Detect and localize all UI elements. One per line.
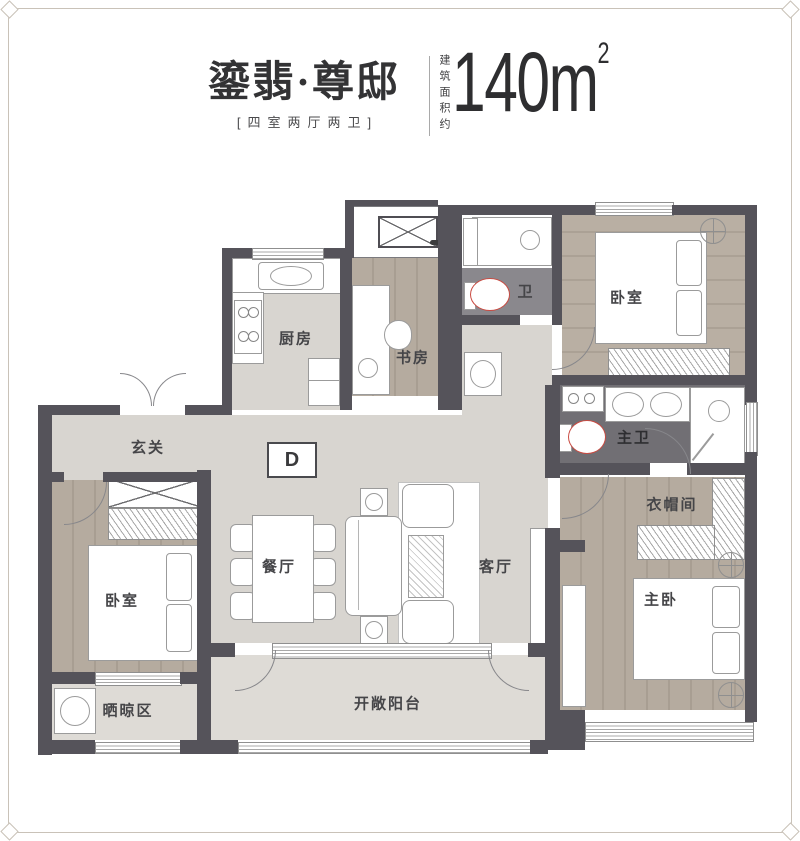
- window: [746, 402, 758, 456]
- window: [252, 248, 324, 260]
- pillow: [166, 553, 192, 601]
- wall-segment: [38, 405, 52, 755]
- wall-segment: [38, 740, 95, 754]
- wall-shaft: [438, 205, 462, 410]
- area-label-vertical: 建筑面积约: [436, 54, 452, 150]
- armchair: [402, 484, 454, 528]
- vanity-basin-icon: [470, 360, 496, 388]
- layout-spec: [四室两厅两卫]: [188, 112, 420, 131]
- room-label-living: 客厅: [479, 556, 513, 577]
- pillow: [676, 240, 702, 286]
- wall-segment: [530, 740, 548, 754]
- wall-segment: [687, 463, 745, 475]
- wall-segment: [745, 452, 757, 710]
- room-label-bath: 卫: [517, 281, 534, 302]
- wall-segment: [103, 472, 207, 482]
- dresser: [562, 585, 586, 707]
- ceiling-fixture-icon: [718, 552, 744, 578]
- area-superscript: 2: [598, 37, 610, 70]
- wardrobe: [108, 508, 202, 540]
- project-title: 鎏翡·尊邸: [188, 48, 420, 109]
- wall-segment: [340, 248, 352, 410]
- wall-segment: [462, 315, 520, 325]
- desk-lamp-icon: [358, 358, 378, 378]
- wall-segment: [211, 643, 235, 657]
- wall-segment: [180, 740, 211, 754]
- ceiling-fixture-icon: [700, 218, 726, 244]
- pillow: [712, 586, 740, 628]
- wardrobe: [608, 348, 730, 377]
- room-label-bedroom-top: 卧室: [610, 287, 644, 308]
- room-label-study: 书房: [396, 347, 430, 368]
- corner-window: [585, 722, 754, 742]
- sink-basin-icon: [270, 266, 312, 286]
- wall-segment: [745, 708, 757, 722]
- kitchen-cabinet: [308, 358, 340, 382]
- room-label-master-bath: 主卫: [617, 427, 651, 448]
- wardrobe: [712, 478, 745, 560]
- balcony-sliding-window: [272, 643, 492, 659]
- stove-icon: [234, 300, 262, 354]
- room-label-master-bedroom: 主卧: [644, 589, 678, 610]
- wall-segment: [560, 540, 585, 552]
- wall-segment: [552, 375, 757, 385]
- wall-segment: [180, 672, 197, 684]
- toilet-icon: [470, 278, 510, 311]
- wall-segment: [52, 472, 64, 482]
- area-value: 140m2: [452, 36, 610, 128]
- room-label-balcony: 开敞阳台: [354, 693, 422, 714]
- lamp-icon: [365, 621, 383, 639]
- header-divider: [429, 56, 430, 136]
- shower-head-icon: [520, 230, 540, 250]
- room-label-kitchen: 厨房: [279, 328, 313, 349]
- wall-segment: [211, 740, 238, 754]
- sink-basin-icon: [612, 392, 644, 417]
- balcony-window: [238, 742, 532, 754]
- sofa: [345, 516, 402, 616]
- ac-unit-icon: [378, 216, 438, 248]
- fridge-icon: [308, 380, 340, 406]
- wall-segment: [462, 205, 595, 215]
- wardrobe: [637, 525, 715, 560]
- wall-segment: [345, 200, 354, 258]
- wall-segment: [197, 470, 211, 752]
- unit-type-badge: D: [267, 442, 317, 478]
- wall-segment: [548, 710, 585, 750]
- laundry-cabinet: [562, 386, 604, 412]
- pillow: [676, 290, 702, 336]
- pillow: [166, 604, 192, 652]
- room-label-entry: 玄关: [131, 437, 165, 458]
- room-label-drying: 晒晾区: [102, 700, 153, 721]
- room-label-bedroom-left: 卧室: [105, 590, 139, 611]
- shower-area: [472, 217, 552, 266]
- toilet-icon: [568, 420, 606, 454]
- room-label-cloakroom: 衣帽间: [646, 494, 697, 515]
- wall-segment: [552, 205, 562, 325]
- armchair: [402, 600, 454, 644]
- washer-drum-icon: [60, 696, 90, 726]
- sofa-back-line: [358, 520, 359, 610]
- bath-cabinet: [463, 218, 478, 266]
- overhead-cabinet: [108, 478, 202, 508]
- window: [95, 672, 182, 686]
- lamp-icon: [365, 493, 383, 511]
- ceiling-fixture-icon: [718, 682, 744, 708]
- floorplan-page: 鎏翡·尊邸 [四室两厅两卫] 建筑面积约 140m2: [0, 0, 800, 841]
- window: [595, 202, 674, 216]
- wall-segment: [185, 405, 232, 415]
- pillow: [712, 632, 740, 674]
- room-label-dining: 餐厅: [262, 556, 296, 577]
- desk-chair-icon: [384, 320, 412, 350]
- wall-segment: [352, 200, 438, 206]
- wall-segment: [528, 643, 548, 657]
- wall-segment: [52, 672, 95, 684]
- wall-segment: [222, 248, 232, 415]
- window: [95, 742, 182, 754]
- sink-basin-icon: [650, 392, 682, 417]
- shower-head-icon: [708, 400, 730, 422]
- coffee-table: [408, 535, 444, 598]
